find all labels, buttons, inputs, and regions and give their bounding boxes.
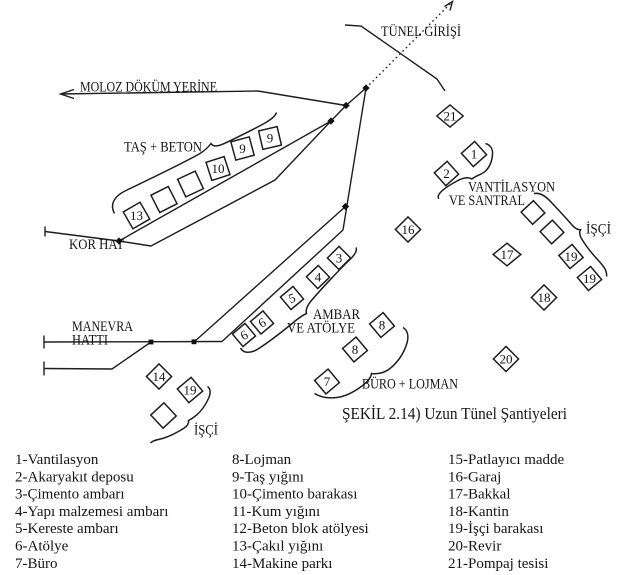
svg-text:16: 16 — [402, 222, 416, 237]
svg-text:21: 21 — [444, 109, 457, 124]
svg-text:19: 19 — [184, 383, 197, 398]
svg-text:21-Pompaj tesisi: 21-Pompaj tesisi — [448, 556, 548, 572]
svg-text:17: 17 — [501, 247, 515, 262]
svg-text:17-Bakkal: 17-Bakkal — [448, 487, 510, 503]
svg-text:BÜRO + LOJMAN: BÜRO + LOJMAN — [362, 376, 458, 393]
svg-text:12-Beton blok atölyesi: 12-Beton blok atölyesi — [232, 521, 369, 537]
svg-text:11-Kum yığını: 11-Kum yığını — [232, 504, 320, 520]
svg-text:18: 18 — [538, 290, 551, 305]
svg-text:7-Büro: 7-Büro — [15, 556, 58, 572]
svg-text:19-İşçi barakası: 19-İşçi barakası — [448, 521, 543, 537]
svg-text:HATTI: HATTI — [72, 333, 108, 349]
svg-text:2-Akaryakıt deposu: 2-Akaryakıt deposu — [15, 469, 134, 485]
svg-text:13: 13 — [130, 208, 143, 223]
svg-text:3: 3 — [336, 251, 343, 266]
svg-text:5-Kereste ambarı: 5-Kereste ambarı — [15, 521, 119, 537]
svg-text:10: 10 — [212, 161, 225, 176]
svg-text:8: 8 — [379, 318, 386, 333]
svg-text:2: 2 — [443, 166, 450, 181]
svg-text:8: 8 — [352, 342, 359, 357]
svg-text:14-Makine parkı: 14-Makine parkı — [232, 556, 332, 572]
svg-text:6-Atölye: 6-Atölye — [15, 539, 69, 555]
svg-text:14: 14 — [153, 369, 167, 384]
svg-text:TAŞ + BETON: TAŞ + BETON — [124, 140, 202, 156]
svg-text:18-Kantin: 18-Kantin — [448, 504, 509, 520]
svg-text:KOR HAT: KOR HAT — [69, 237, 124, 253]
svg-text:7: 7 — [324, 374, 331, 389]
svg-text:İŞÇİ: İŞÇİ — [194, 423, 218, 439]
svg-text:16-Garaj: 16-Garaj — [448, 469, 501, 485]
svg-text:1-Vantilasyon: 1-Vantilasyon — [15, 452, 99, 468]
svg-text:1: 1 — [471, 147, 478, 162]
svg-text:8-Lojman: 8-Lojman — [232, 452, 292, 468]
svg-text:ŞEKİL 2.14) Uzun Tünel Şantiye: ŞEKİL 2.14) Uzun Tünel Şantiyeleri — [342, 404, 567, 423]
svg-text:9: 9 — [267, 131, 274, 146]
svg-text:İŞÇİ: İŞÇİ — [586, 222, 611, 238]
svg-text:3-Çimento ambarı: 3-Çimento ambarı — [15, 487, 125, 503]
svg-text:20: 20 — [500, 352, 513, 367]
svg-text:19: 19 — [583, 271, 596, 286]
svg-text:10-Çimento barakası: 10-Çimento barakası — [232, 487, 357, 503]
svg-text:MOLOZ DÖKÜM YERİNE: MOLOZ DÖKÜM YERİNE — [80, 79, 217, 96]
svg-text:19: 19 — [565, 249, 578, 264]
svg-text:4-Yapı malzemesi ambarı: 4-Yapı malzemesi ambarı — [15, 504, 168, 520]
svg-text:15-Patlayıcı madde: 15-Patlayıcı madde — [448, 452, 565, 468]
svg-text:13-Çakıl yığını: 13-Çakıl yığını — [232, 539, 323, 555]
svg-text:VE ATÖLYE: VE ATÖLYE — [287, 320, 355, 337]
svg-text:20-Revir: 20-Revir — [448, 539, 501, 555]
svg-text:9-Taş yığını: 9-Taş yığını — [232, 469, 304, 485]
svg-text:VE SANTRAL: VE SANTRAL — [449, 193, 525, 209]
svg-text:TÜNEL GİRİŞİ: TÜNEL GİRİŞİ — [381, 23, 461, 40]
svg-text:9: 9 — [239, 141, 246, 156]
svg-text:4: 4 — [315, 270, 322, 285]
